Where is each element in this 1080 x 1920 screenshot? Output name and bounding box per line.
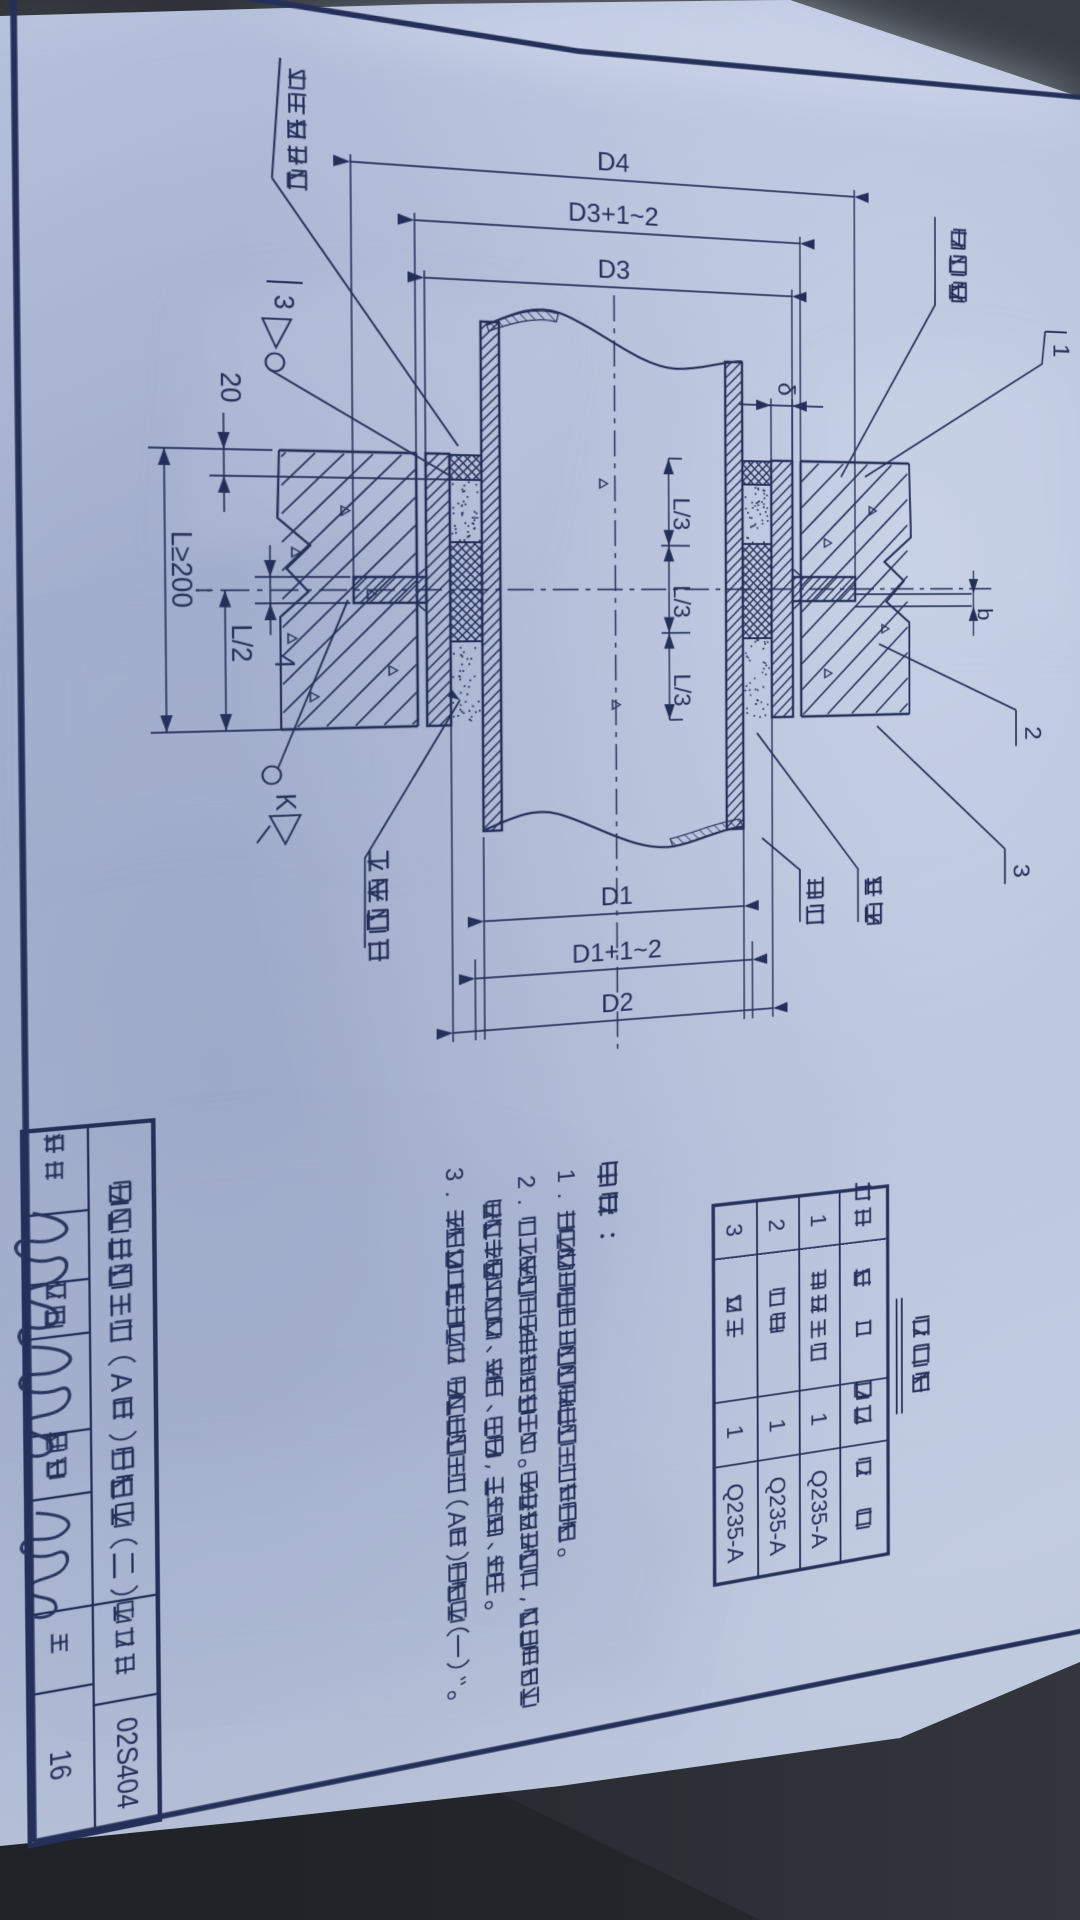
svg-text:1: 1 — [722, 1424, 747, 1441]
svg-text:一: 一 — [444, 1632, 472, 1661]
svg-text:D2: D2 — [601, 988, 633, 1019]
svg-text:4: 4 — [268, 653, 300, 669]
svg-text:16: 16 — [43, 1747, 76, 1783]
svg-text:1: 1 — [765, 1417, 790, 1433]
svg-text:1: 1 — [806, 1213, 830, 1229]
svg-text:2: 2 — [764, 1217, 789, 1233]
svg-text:2: 2 — [513, 1174, 540, 1190]
svg-text:.: . — [552, 1191, 579, 1200]
svg-text:3: 3 — [1008, 863, 1034, 878]
svg-text:02S404: 02S404 — [109, 1715, 142, 1812]
svg-text:L/3: L/3 — [669, 673, 695, 706]
svg-text:L/3: L/3 — [669, 585, 695, 618]
svg-text:D3: D3 — [597, 254, 630, 285]
svg-text:L≥200: L≥200 — [164, 531, 198, 608]
svg-text:D4: D4 — [597, 147, 630, 179]
svg-text:Q235-A: Q235-A — [806, 1468, 830, 1551]
svg-text:1: 1 — [1048, 343, 1074, 358]
svg-text:b: b — [973, 608, 996, 621]
svg-text:.: . — [513, 1197, 540, 1207]
svg-text:δ: δ — [773, 382, 799, 396]
svg-text:D1: D1 — [601, 881, 633, 912]
svg-text:L/3: L/3 — [668, 497, 694, 530]
svg-text:Q235-A: Q235-A — [765, 1475, 790, 1558]
svg-text:1: 1 — [552, 1168, 579, 1184]
svg-text:A: A — [104, 1370, 137, 1393]
svg-text:K: K — [270, 793, 301, 812]
svg-text:3: 3 — [441, 1166, 469, 1182]
svg-text:.: . — [441, 1189, 469, 1199]
svg-text:D1+1~2: D1+1~2 — [572, 935, 662, 970]
svg-text:20: 20 — [214, 371, 247, 403]
svg-text:3: 3 — [268, 294, 299, 310]
svg-text:二: 二 — [106, 1548, 139, 1581]
svg-text:3: 3 — [721, 1222, 746, 1238]
svg-text:2: 2 — [1020, 726, 1046, 741]
svg-text:1: 1 — [806, 1411, 830, 1427]
svg-text:Q235-A: Q235-A — [722, 1481, 747, 1565]
svg-text:A: A — [443, 1509, 471, 1530]
svg-text:D3+1~2: D3+1~2 — [568, 197, 659, 232]
svg-text:L/2: L/2 — [225, 624, 258, 663]
